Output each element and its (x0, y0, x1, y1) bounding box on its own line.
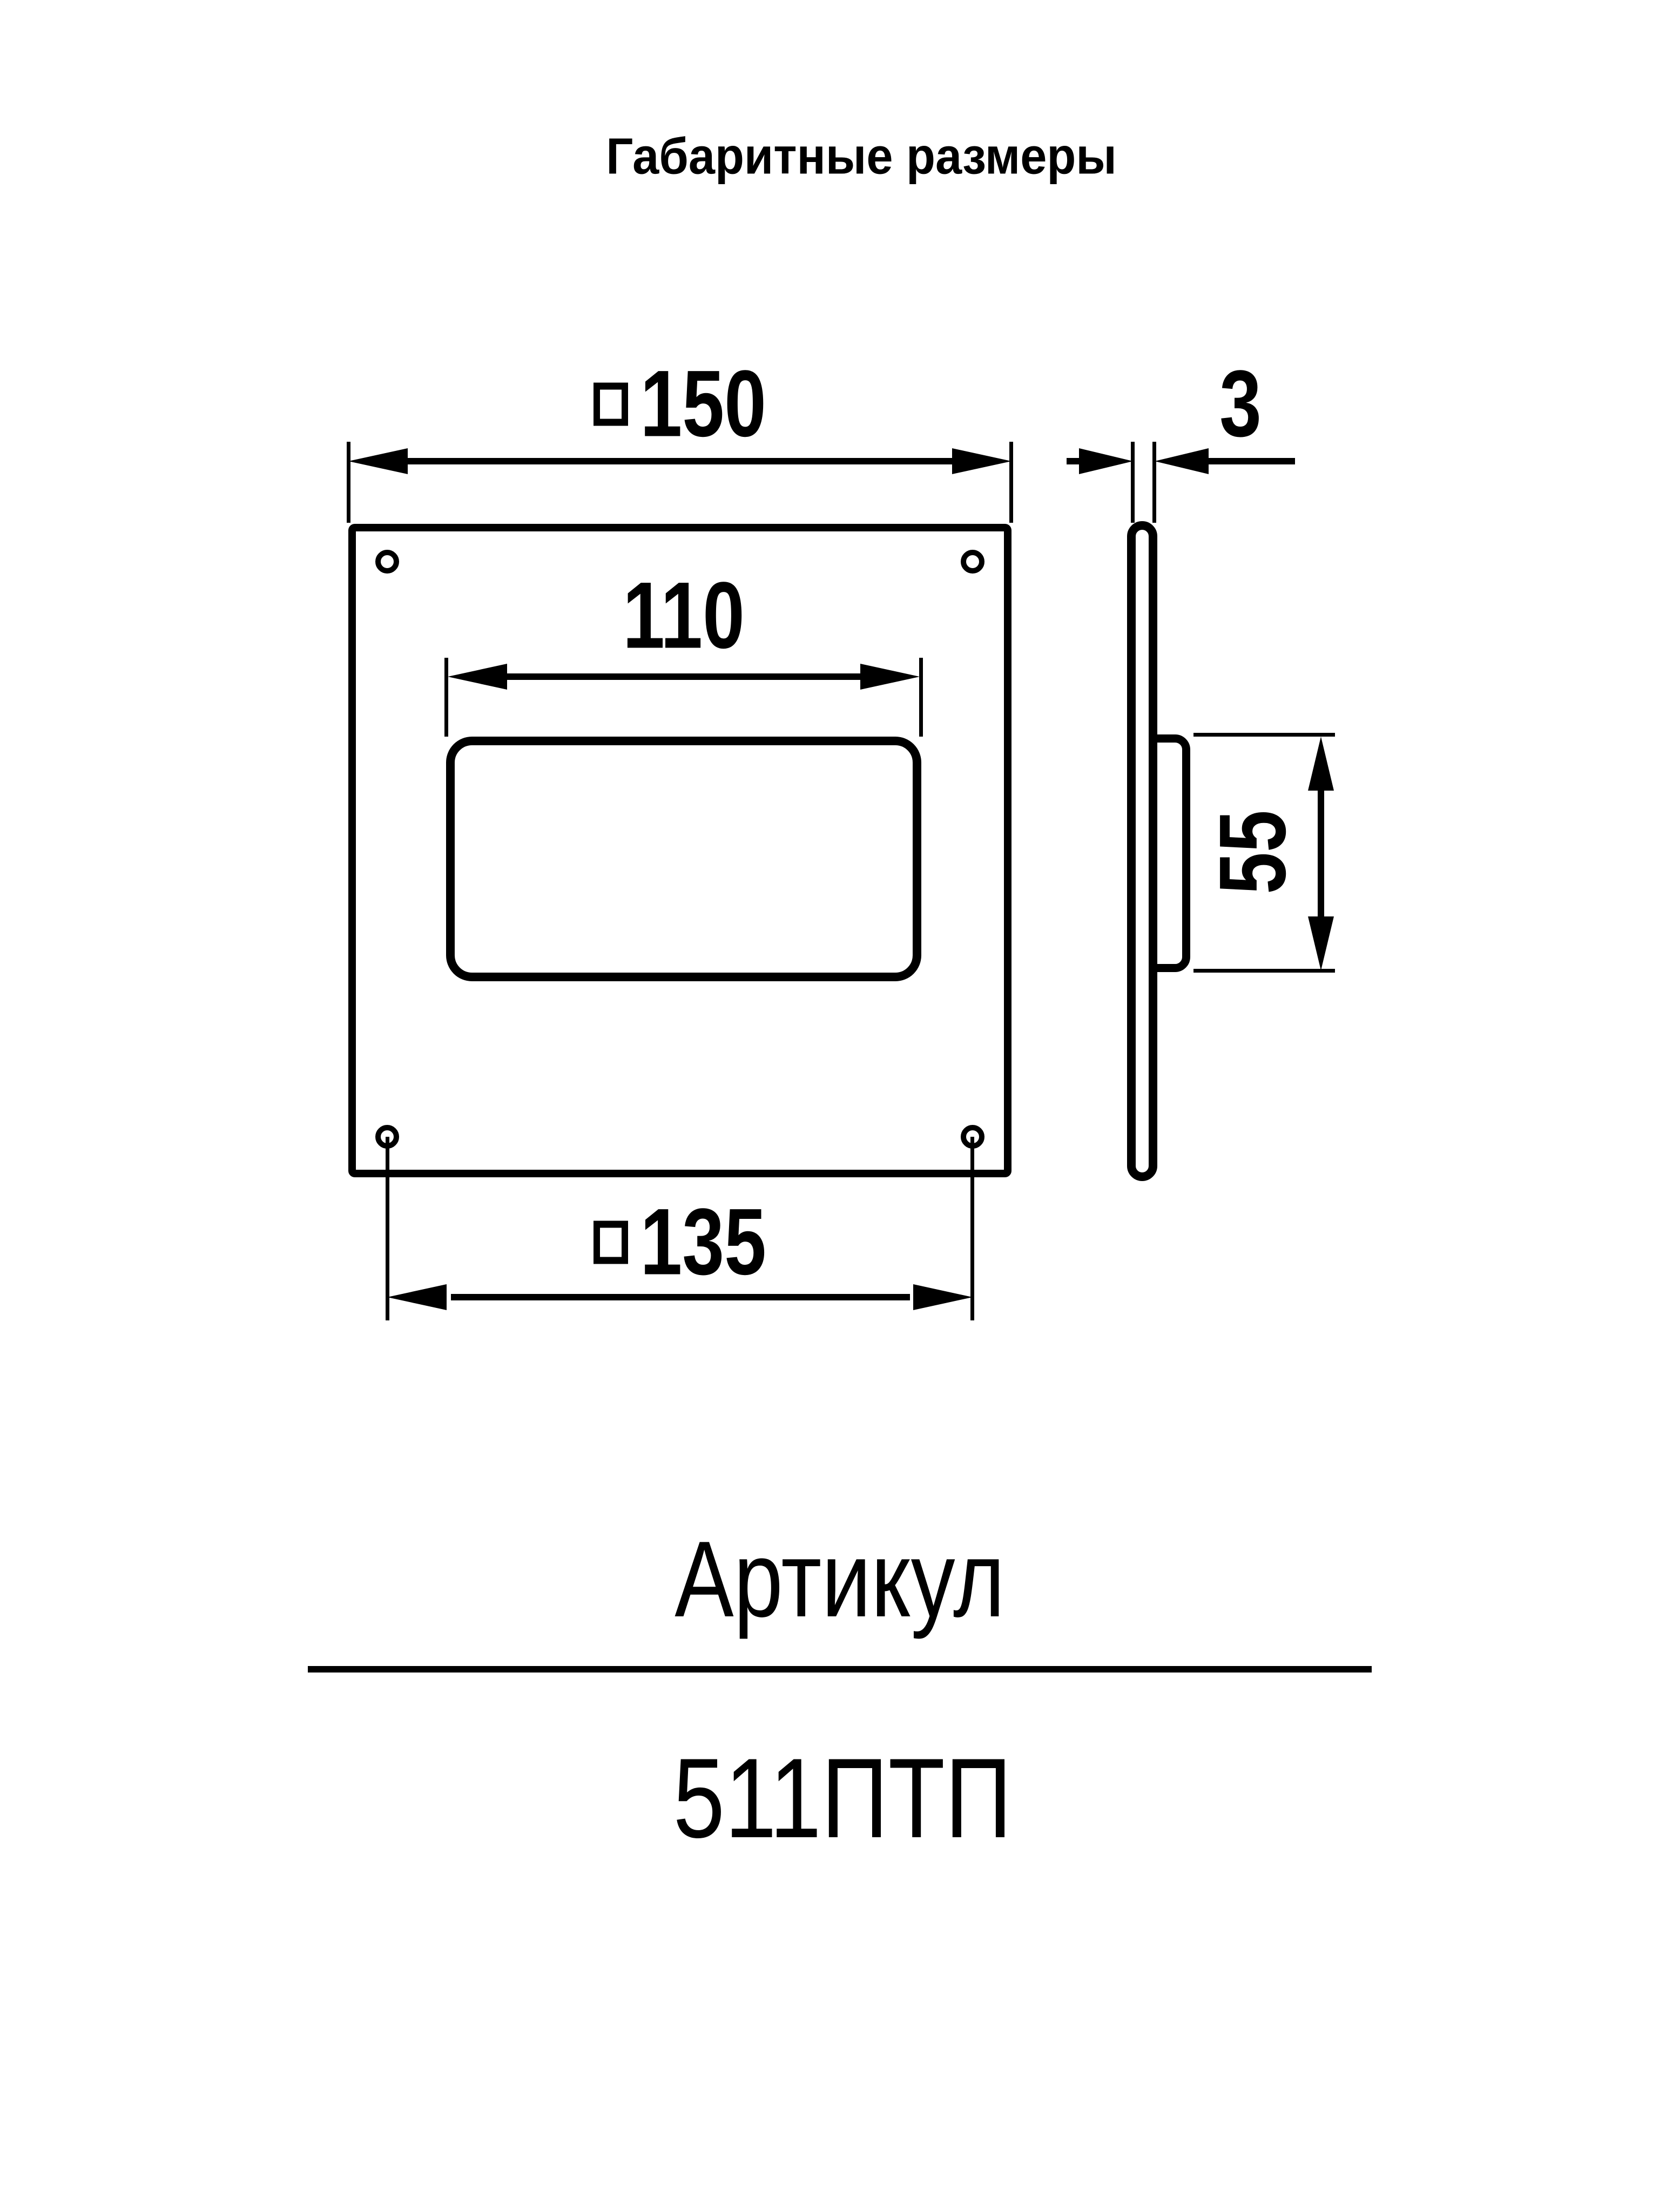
dim-label-hole-spacing: 135 (594, 1195, 766, 1290)
arrowhead-right-icon (860, 664, 920, 690)
arrowhead-up-icon (1308, 737, 1334, 791)
drawing-title: Габаритные размеры (606, 127, 1117, 186)
arrowhead-right-icon (913, 1284, 973, 1310)
dimension-line (1204, 458, 1295, 464)
dim-label-thickness: 3 (1219, 357, 1262, 451)
arrowhead-left-icon (1155, 448, 1209, 474)
dimension-line (451, 1294, 910, 1300)
dim-label-opening-width: 110 (623, 569, 745, 663)
arrowhead-right-icon (1079, 448, 1133, 474)
dimension-line (505, 673, 864, 680)
dim-value: 135 (640, 1195, 766, 1290)
arrowhead-left-icon (348, 448, 408, 474)
mounting-hole-top-left (375, 550, 399, 574)
extension-line (1193, 733, 1335, 737)
square-symbol-icon (594, 1220, 628, 1264)
dim-label-outer-width: 150 (594, 357, 766, 451)
dim-label-stub-height: 55 (1206, 810, 1300, 894)
arrowhead-left-icon (387, 1284, 447, 1310)
side-plate-outline (1127, 521, 1157, 1181)
article-divider (308, 1666, 1372, 1673)
square-symbol-icon (594, 382, 628, 426)
arrowhead-right-icon (952, 448, 1011, 474)
mounting-hole-top-right (961, 550, 984, 574)
dim-value: 150 (640, 357, 766, 451)
arrowhead-down-icon (1308, 916, 1334, 970)
duct-opening (446, 737, 921, 981)
article-heading: Артикул (675, 1526, 1004, 1634)
article-code: 511ПТП (673, 1742, 1011, 1855)
dimension-line (405, 458, 956, 464)
dimension-line (1318, 788, 1324, 918)
extension-line (919, 658, 923, 737)
arrowhead-left-icon (448, 664, 507, 690)
